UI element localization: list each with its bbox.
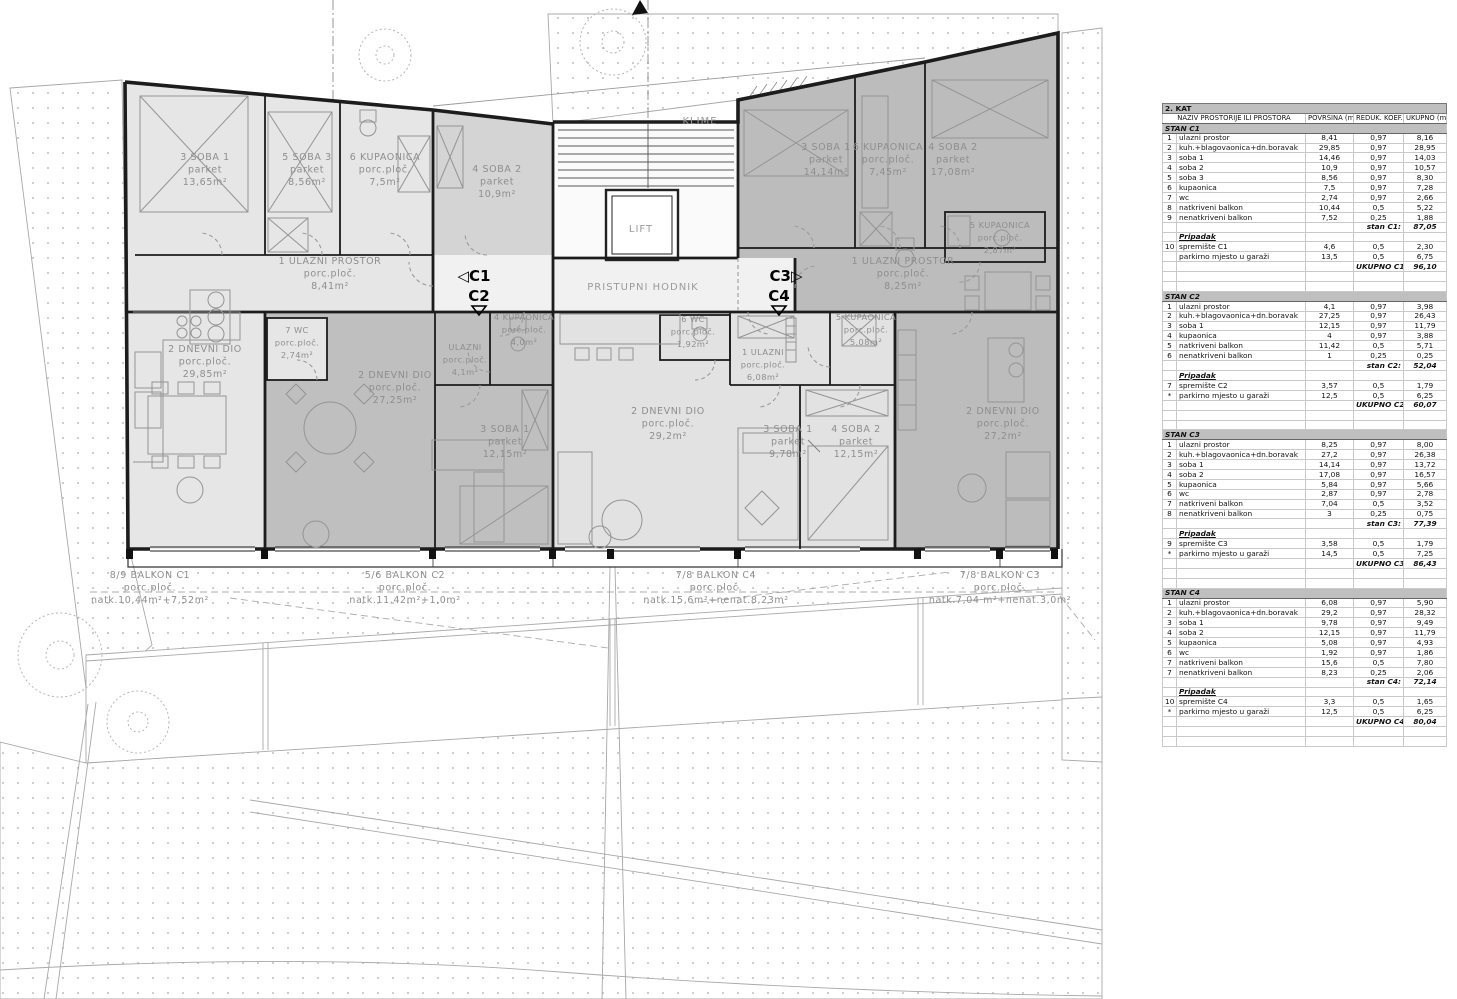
table-cell: STAN C1 bbox=[1163, 123, 1447, 133]
table-cell: ulazni prostor bbox=[1177, 598, 1306, 608]
table-cell: 2 bbox=[1163, 608, 1177, 618]
table-cell bbox=[1354, 568, 1404, 578]
table-cell: natkriveni balkon bbox=[1177, 657, 1306, 667]
spacer-row bbox=[1163, 727, 1447, 737]
table-cell: 3,98 bbox=[1404, 301, 1447, 311]
table-cell: 0,97 bbox=[1354, 450, 1404, 460]
unit-marker-label: C4 bbox=[768, 287, 789, 305]
table-cell: 5,66 bbox=[1404, 479, 1447, 489]
table-cell bbox=[1354, 687, 1404, 697]
table-cell bbox=[1163, 282, 1177, 292]
table-cell: 0,97 bbox=[1354, 598, 1404, 608]
table-cell bbox=[1354, 410, 1404, 420]
table-cell bbox=[1306, 262, 1354, 272]
table-cell: 2,87 bbox=[1306, 489, 1354, 499]
table-row: 2kuh.+blagovaonica+dn.boravak29,20,9728,… bbox=[1163, 608, 1447, 618]
table-cell: 2,74 bbox=[1306, 193, 1354, 203]
table-cell: 6,25 bbox=[1404, 707, 1447, 717]
table-cell bbox=[1163, 361, 1177, 371]
table-cell bbox=[1306, 371, 1354, 381]
table-row: 3soba 19,780,979,49 bbox=[1163, 618, 1447, 628]
table-cell: 0,97 bbox=[1354, 638, 1404, 648]
pripadak-header-row: Pripadak bbox=[1163, 232, 1447, 242]
table-cell: 5,90 bbox=[1404, 598, 1447, 608]
table-cell: 3 bbox=[1163, 153, 1177, 163]
table-cell: 0,5 bbox=[1354, 697, 1404, 707]
table-cell: 1,92 bbox=[1306, 647, 1354, 657]
table-cell: 60,07 bbox=[1404, 400, 1447, 410]
table-cell bbox=[1354, 420, 1404, 430]
table-cell: 17,08 bbox=[1306, 469, 1354, 479]
table-cell: UKUPNO C1: bbox=[1354, 262, 1404, 272]
pripadak-header-row: Pripadak bbox=[1163, 529, 1447, 539]
table-cell: 1,86 bbox=[1404, 647, 1447, 657]
table-cell bbox=[1163, 558, 1177, 568]
table-cell bbox=[1306, 282, 1354, 292]
table-cell: 7,52 bbox=[1306, 212, 1354, 222]
table-cell bbox=[1177, 568, 1306, 578]
table-cell: 2,06 bbox=[1404, 667, 1447, 677]
table-cell: Pripadak bbox=[1177, 687, 1306, 697]
table-row: 10spremište C43,30,51,65 bbox=[1163, 697, 1447, 707]
table-cell bbox=[1163, 222, 1177, 232]
table-cell: natkriveni balkon bbox=[1177, 202, 1306, 212]
table-cell bbox=[1306, 687, 1354, 697]
table-cell bbox=[1177, 677, 1306, 687]
table-cell: 8,16 bbox=[1404, 133, 1447, 143]
table-cell bbox=[1163, 420, 1177, 430]
section-header: STAN C3 bbox=[1163, 430, 1447, 440]
table-cell: 9 bbox=[1163, 212, 1177, 222]
table-cell bbox=[1163, 677, 1177, 687]
subtotal-row: stan C1:87,05 bbox=[1163, 222, 1447, 232]
table-row: 4soba 217,080,9716,57 bbox=[1163, 469, 1447, 479]
table-cell: nenatkriveni balkon bbox=[1177, 509, 1306, 519]
table-row: 3soba 114,460,9714,03 bbox=[1163, 153, 1447, 163]
pripadak-header-row: Pripadak bbox=[1163, 687, 1447, 697]
table-cell: 0,5 bbox=[1354, 657, 1404, 667]
table-cell: 1,79 bbox=[1404, 380, 1447, 390]
unit-marker-label: ◁C1 bbox=[458, 267, 491, 285]
table-cell: 0,97 bbox=[1354, 321, 1404, 331]
room-label: PRISTUPNI HODNIK bbox=[587, 282, 698, 293]
table-cell: spremište C2 bbox=[1177, 380, 1306, 390]
total-row: UKUPNO C2:60,07 bbox=[1163, 400, 1447, 410]
table-cell bbox=[1177, 361, 1306, 371]
col-ukupno: UKUPNO (m2) bbox=[1404, 113, 1447, 123]
room-label: 1 ULAZNIporc.ploč.6,08m² bbox=[741, 347, 786, 382]
table-row: *parkirno mjesto u garaži12,50,56,25 bbox=[1163, 707, 1447, 717]
table-cell: 8 bbox=[1163, 509, 1177, 519]
table-cell: 5 bbox=[1163, 173, 1177, 183]
table-cell: 14,5 bbox=[1306, 549, 1354, 559]
table-cell bbox=[1163, 529, 1177, 539]
table-cell: natkriveni balkon bbox=[1177, 341, 1306, 351]
table-cell: 29,2 bbox=[1306, 608, 1354, 618]
table-cell: 4 bbox=[1163, 469, 1177, 479]
table-cell: 3 bbox=[1163, 460, 1177, 470]
subtotal-row: stan C2:52,04 bbox=[1163, 361, 1447, 371]
table-cell bbox=[1306, 558, 1354, 568]
table-cell bbox=[1177, 717, 1306, 727]
table-row: 1ulazni prostor4,10,973,98 bbox=[1163, 301, 1447, 311]
table-cell: 80,04 bbox=[1404, 717, 1447, 727]
table-cell bbox=[1163, 262, 1177, 272]
table-cell: 8,23 bbox=[1306, 667, 1354, 677]
table-cell: 0,97 bbox=[1354, 173, 1404, 183]
table-cell bbox=[1404, 272, 1447, 282]
table-cell: STAN C4 bbox=[1163, 588, 1447, 598]
table-cell: 1,79 bbox=[1404, 539, 1447, 549]
table-cell: 3 bbox=[1306, 509, 1354, 519]
table-cell bbox=[1177, 272, 1306, 282]
table-cell bbox=[1306, 529, 1354, 539]
table-cell bbox=[1163, 232, 1177, 242]
table-cell: ulazni prostor bbox=[1177, 133, 1306, 143]
table-cell: 4 bbox=[1163, 331, 1177, 341]
table-cell bbox=[1177, 578, 1306, 588]
table-cell: kupaonica bbox=[1177, 479, 1306, 489]
table-cell: 0,25 bbox=[1354, 509, 1404, 519]
table-cell: 0,97 bbox=[1354, 647, 1404, 657]
table-cell: 7 bbox=[1163, 657, 1177, 667]
table-cell: 7,5 bbox=[1306, 183, 1354, 193]
table-cell bbox=[1163, 400, 1177, 410]
table-cell bbox=[1163, 578, 1177, 588]
table-cell bbox=[1404, 737, 1447, 747]
table-cell bbox=[1163, 568, 1177, 578]
table-cell: 0,75 bbox=[1404, 509, 1447, 519]
table-cell: 0,97 bbox=[1354, 608, 1404, 618]
table-cell bbox=[1163, 717, 1177, 727]
table-cell bbox=[1177, 400, 1306, 410]
area-table-grid: 2. KAT NAZIV PROSTORIJE ILI PROSTORA POV… bbox=[1162, 103, 1447, 747]
table-cell bbox=[1404, 410, 1447, 420]
table-cell: 5 bbox=[1163, 341, 1177, 351]
table-row: 9nenatkriveni balkon7,520,251,88 bbox=[1163, 212, 1447, 222]
table-cell bbox=[1306, 361, 1354, 371]
table-cell bbox=[1177, 222, 1306, 232]
table-cell: 3,57 bbox=[1306, 380, 1354, 390]
table-cell: 27,2 bbox=[1306, 450, 1354, 460]
table-cell: kupaonica bbox=[1177, 638, 1306, 648]
table-cell: 1 bbox=[1163, 301, 1177, 311]
table-cell: 6 bbox=[1163, 489, 1177, 499]
table-cell: soba 1 bbox=[1177, 460, 1306, 470]
table-cell: stan C1: bbox=[1354, 222, 1404, 232]
room-label: LIFT bbox=[629, 224, 653, 235]
spacer-row bbox=[1163, 420, 1447, 430]
table-cell: 7 bbox=[1163, 193, 1177, 203]
table-cell: 1,65 bbox=[1404, 697, 1447, 707]
table-row: 7spremište C23,570,51,79 bbox=[1163, 380, 1447, 390]
table-cell bbox=[1177, 519, 1306, 529]
col-koef: REDUK. KOEF. bbox=[1354, 113, 1404, 123]
table-cell: 5,71 bbox=[1404, 341, 1447, 351]
table-cell: stan C3: bbox=[1354, 519, 1404, 529]
table-cell: 0,97 bbox=[1354, 153, 1404, 163]
table-cell: soba 2 bbox=[1177, 163, 1306, 173]
table-cell: 3,88 bbox=[1404, 331, 1447, 341]
table-row: 6kupaonica7,50,977,28 bbox=[1163, 183, 1447, 193]
table-cell: 10,57 bbox=[1404, 163, 1447, 173]
table-cell: spremište C3 bbox=[1177, 539, 1306, 549]
table-cell: 3 bbox=[1163, 618, 1177, 628]
table-cell: STAN C3 bbox=[1163, 430, 1447, 440]
table-cell: nenatkriveni balkon bbox=[1177, 351, 1306, 361]
table-cell: ulazni prostor bbox=[1177, 301, 1306, 311]
table-cell bbox=[1306, 578, 1354, 588]
table-cell: 0,97 bbox=[1354, 460, 1404, 470]
table-cell: 6 bbox=[1163, 351, 1177, 361]
section-header: STAN C1 bbox=[1163, 123, 1447, 133]
table-cell: 7,80 bbox=[1404, 657, 1447, 667]
table-row: 7wc2,740,972,66 bbox=[1163, 193, 1447, 203]
table-row: 4soba 210,90,9710,57 bbox=[1163, 163, 1447, 173]
table-cell: spremište C4 bbox=[1177, 697, 1306, 707]
table-row: 7natkriveni balkon15,60,57,80 bbox=[1163, 657, 1447, 667]
table-cell: 0,5 bbox=[1354, 252, 1404, 262]
table-row: 4soba 212,150,9711,79 bbox=[1163, 628, 1447, 638]
total-row: UKUPNO C3:86,43 bbox=[1163, 558, 1447, 568]
table-cell: 10 bbox=[1163, 242, 1177, 252]
table-row: parkirno mjesto u garaži13,50,56,75 bbox=[1163, 252, 1447, 262]
area-table: 2. KAT NAZIV PROSTORIJE ILI PROSTORA POV… bbox=[1162, 103, 1446, 747]
table-row: 5soba 38,560,978,30 bbox=[1163, 173, 1447, 183]
table-cell: 13,5 bbox=[1306, 252, 1354, 262]
spacer-row bbox=[1163, 272, 1447, 282]
table-cell bbox=[1404, 727, 1447, 737]
table-cell: 6,75 bbox=[1404, 252, 1447, 262]
table-cell bbox=[1163, 371, 1177, 381]
section-header: STAN C2 bbox=[1163, 291, 1447, 301]
table-cell bbox=[1306, 400, 1354, 410]
table-cell: kupaonica bbox=[1177, 331, 1306, 341]
table-cell: ulazni prostor bbox=[1177, 440, 1306, 450]
table-cell bbox=[1177, 410, 1306, 420]
table-cell: 29,85 bbox=[1306, 143, 1354, 153]
table-cell: soba 1 bbox=[1177, 153, 1306, 163]
table-cell bbox=[1163, 410, 1177, 420]
north-arrow-icon bbox=[632, 0, 648, 15]
table-cell: 52,04 bbox=[1404, 361, 1447, 371]
table-cell: wc bbox=[1177, 647, 1306, 657]
table-cell: 0,5 bbox=[1354, 380, 1404, 390]
table-cell: 12,5 bbox=[1306, 707, 1354, 717]
table-row: *parkirno mjesto u garaži12,50,56,25 bbox=[1163, 390, 1447, 400]
table-cell: 6,08 bbox=[1306, 598, 1354, 608]
table-row: 3soba 114,140,9713,72 bbox=[1163, 460, 1447, 470]
table-row: 4kupaonica40,973,88 bbox=[1163, 331, 1447, 341]
table-cell bbox=[1163, 737, 1177, 747]
table-row: 5kupaonica5,840,975,66 bbox=[1163, 479, 1447, 489]
table-cell: 0,97 bbox=[1354, 469, 1404, 479]
table-cell bbox=[1404, 687, 1447, 697]
table-cell: 0,5 bbox=[1354, 499, 1404, 509]
table-cell: parkirno mjesto u garaži bbox=[1177, 707, 1306, 717]
pripadak-header-row: Pripadak bbox=[1163, 371, 1447, 381]
table-cell bbox=[1163, 519, 1177, 529]
table-cell: 10,9 bbox=[1306, 163, 1354, 173]
spacer-row bbox=[1163, 737, 1447, 747]
table-cell: 0,97 bbox=[1354, 311, 1404, 321]
table-cell bbox=[1163, 272, 1177, 282]
table-cell: 0,97 bbox=[1354, 440, 1404, 450]
table-cell: 0,97 bbox=[1354, 183, 1404, 193]
table-cell: 8,25 bbox=[1306, 440, 1354, 450]
floorplan-sheet: 3 SOBA 1parket13,65m²5 SOBA 3parket8,56m… bbox=[0, 0, 1457, 999]
table-row: 8nenatkriveni balkon30,250,75 bbox=[1163, 509, 1447, 519]
table-row: 6wc1,920,971,86 bbox=[1163, 647, 1447, 657]
table-cell: 5,08 bbox=[1306, 638, 1354, 648]
table-cell: 14,14 bbox=[1306, 460, 1354, 470]
table-cell: 14,46 bbox=[1306, 153, 1354, 163]
table-row: 5kupaonica5,080,974,93 bbox=[1163, 638, 1447, 648]
table-title-row: 2. KAT bbox=[1163, 104, 1447, 114]
table-cell: kuh.+blagovaonica+dn.boravak bbox=[1177, 608, 1306, 618]
table-cell: 3 bbox=[1163, 321, 1177, 331]
spacer-row bbox=[1163, 568, 1447, 578]
table-cell: 3,3 bbox=[1306, 697, 1354, 707]
table-row: 9spremište C33,580,51,79 bbox=[1163, 539, 1447, 549]
table-cell: 72,14 bbox=[1404, 677, 1447, 687]
table-cell bbox=[1306, 519, 1354, 529]
table-cell bbox=[1404, 529, 1447, 539]
table-cell: soba 3 bbox=[1177, 173, 1306, 183]
table-cell: * bbox=[1163, 549, 1177, 559]
table-cell: * bbox=[1163, 707, 1177, 717]
balcony-strip bbox=[126, 549, 1062, 567]
table-cell bbox=[1177, 420, 1306, 430]
table-cell bbox=[1354, 232, 1404, 242]
table-cell: 0,5 bbox=[1354, 707, 1404, 717]
table-cell: 12,5 bbox=[1306, 390, 1354, 400]
table-row: 6nenatkriveni balkon10,250,25 bbox=[1163, 351, 1447, 361]
table-cell: 77,39 bbox=[1404, 519, 1447, 529]
table-cell: nenatkriveni balkon bbox=[1177, 667, 1306, 677]
table-cell: 7 bbox=[1163, 667, 1177, 677]
table-cell: 5,22 bbox=[1404, 202, 1447, 212]
spacer-row bbox=[1163, 410, 1447, 420]
table-cell bbox=[1177, 727, 1306, 737]
table-cell: 6,25 bbox=[1404, 390, 1447, 400]
table-cell: kuh.+blagovaonica+dn.boravak bbox=[1177, 311, 1306, 321]
table-cell: 10 bbox=[1163, 697, 1177, 707]
table-cell: nenatkriveni balkon bbox=[1177, 212, 1306, 222]
table-cell: wc bbox=[1177, 489, 1306, 499]
col-povrsina: POVRŠINA (m2) bbox=[1306, 113, 1354, 123]
table-cell bbox=[1177, 737, 1306, 747]
table-cell: 10,44 bbox=[1306, 202, 1354, 212]
table-cell: 1,88 bbox=[1404, 212, 1447, 222]
table-cell: 26,38 bbox=[1404, 450, 1447, 460]
table-cell bbox=[1306, 232, 1354, 242]
table-cell: 0,25 bbox=[1354, 667, 1404, 677]
table-cell: 2 bbox=[1163, 311, 1177, 321]
table-cell: wc bbox=[1177, 193, 1306, 203]
table-cell: 8 bbox=[1163, 202, 1177, 212]
table-cell: 0,97 bbox=[1354, 489, 1404, 499]
table-cell: 1 bbox=[1163, 598, 1177, 608]
total-row: UKUPNO C4:80,04 bbox=[1163, 717, 1447, 727]
table-cell: 4,6 bbox=[1306, 242, 1354, 252]
table-row: 3soba 112,150,9711,79 bbox=[1163, 321, 1447, 331]
table-cell: 11,42 bbox=[1306, 341, 1354, 351]
table-row: 7nenatkriveni balkon8,230,252,06 bbox=[1163, 667, 1447, 677]
table-column-header-row: NAZIV PROSTORIJE ILI PROSTORA POVRŠINA (… bbox=[1163, 113, 1447, 123]
table-cell bbox=[1163, 687, 1177, 697]
table-cell bbox=[1404, 232, 1447, 242]
table-row: 1ulazni prostor8,250,978,00 bbox=[1163, 440, 1447, 450]
table-cell: 0,5 bbox=[1354, 390, 1404, 400]
table-cell: 2,66 bbox=[1404, 193, 1447, 203]
table-row: 2kuh.+blagovaonica+dn.boravak29,850,9728… bbox=[1163, 143, 1447, 153]
table-cell bbox=[1354, 578, 1404, 588]
table-cell: 0,5 bbox=[1354, 539, 1404, 549]
table-cell: 0,97 bbox=[1354, 618, 1404, 628]
table-cell bbox=[1306, 272, 1354, 282]
table-cell bbox=[1306, 737, 1354, 747]
table-cell bbox=[1404, 371, 1447, 381]
table-cell: Pripadak bbox=[1177, 232, 1306, 242]
table-cell bbox=[1306, 727, 1354, 737]
floor-title: 2. KAT bbox=[1163, 104, 1447, 114]
table-cell: soba 2 bbox=[1177, 469, 1306, 479]
table-cell: kuh.+blagovaonica+dn.boravak bbox=[1177, 143, 1306, 153]
table-cell: 9,78 bbox=[1306, 618, 1354, 628]
table-cell: 86,43 bbox=[1404, 558, 1447, 568]
table-cell: 8,56 bbox=[1306, 173, 1354, 183]
table-cell: 3,58 bbox=[1306, 539, 1354, 549]
table-cell: 11,79 bbox=[1404, 628, 1447, 638]
table-cell bbox=[1354, 727, 1404, 737]
table-cell bbox=[1354, 737, 1404, 747]
table-row: 10spremište C14,60,52,30 bbox=[1163, 242, 1447, 252]
table-cell: 0,25 bbox=[1404, 351, 1447, 361]
table-cell: Pripadak bbox=[1177, 529, 1306, 539]
table-cell bbox=[1306, 677, 1354, 687]
table-cell: 1 bbox=[1163, 133, 1177, 143]
section-header: STAN C4 bbox=[1163, 588, 1447, 598]
table-cell: 5,84 bbox=[1306, 479, 1354, 489]
table-cell bbox=[1354, 371, 1404, 381]
subtotal-row: stan C4:72,14 bbox=[1163, 677, 1447, 687]
table-cell bbox=[1306, 568, 1354, 578]
table-cell: 13,72 bbox=[1404, 460, 1447, 470]
table-cell: 1 bbox=[1306, 351, 1354, 361]
table-cell bbox=[1354, 529, 1404, 539]
table-cell: parkirno mjesto u garaži bbox=[1177, 252, 1306, 262]
table-row: 6wc2,870,972,78 bbox=[1163, 489, 1447, 499]
table-cell: 9 bbox=[1163, 539, 1177, 549]
table-cell bbox=[1177, 558, 1306, 568]
table-cell: 4 bbox=[1163, 163, 1177, 173]
table-cell: 11,79 bbox=[1404, 321, 1447, 331]
table-cell bbox=[1306, 420, 1354, 430]
table-cell: 7,25 bbox=[1404, 549, 1447, 559]
table-cell: 2,78 bbox=[1404, 489, 1447, 499]
table-cell: 0,97 bbox=[1354, 143, 1404, 153]
table-cell: UKUPNO C3: bbox=[1354, 558, 1404, 568]
table-cell: stan C2: bbox=[1354, 361, 1404, 371]
table-cell: 5 bbox=[1163, 479, 1177, 489]
unit-marker-label: C2 bbox=[468, 287, 489, 305]
total-row: UKUPNO C1:96,10 bbox=[1163, 262, 1447, 272]
table-cell: soba 1 bbox=[1177, 321, 1306, 331]
table-row: 2kuh.+blagovaonica+dn.boravak27,20,9726,… bbox=[1163, 450, 1447, 460]
table-cell: 7,28 bbox=[1404, 183, 1447, 193]
table-cell: 0,97 bbox=[1354, 163, 1404, 173]
